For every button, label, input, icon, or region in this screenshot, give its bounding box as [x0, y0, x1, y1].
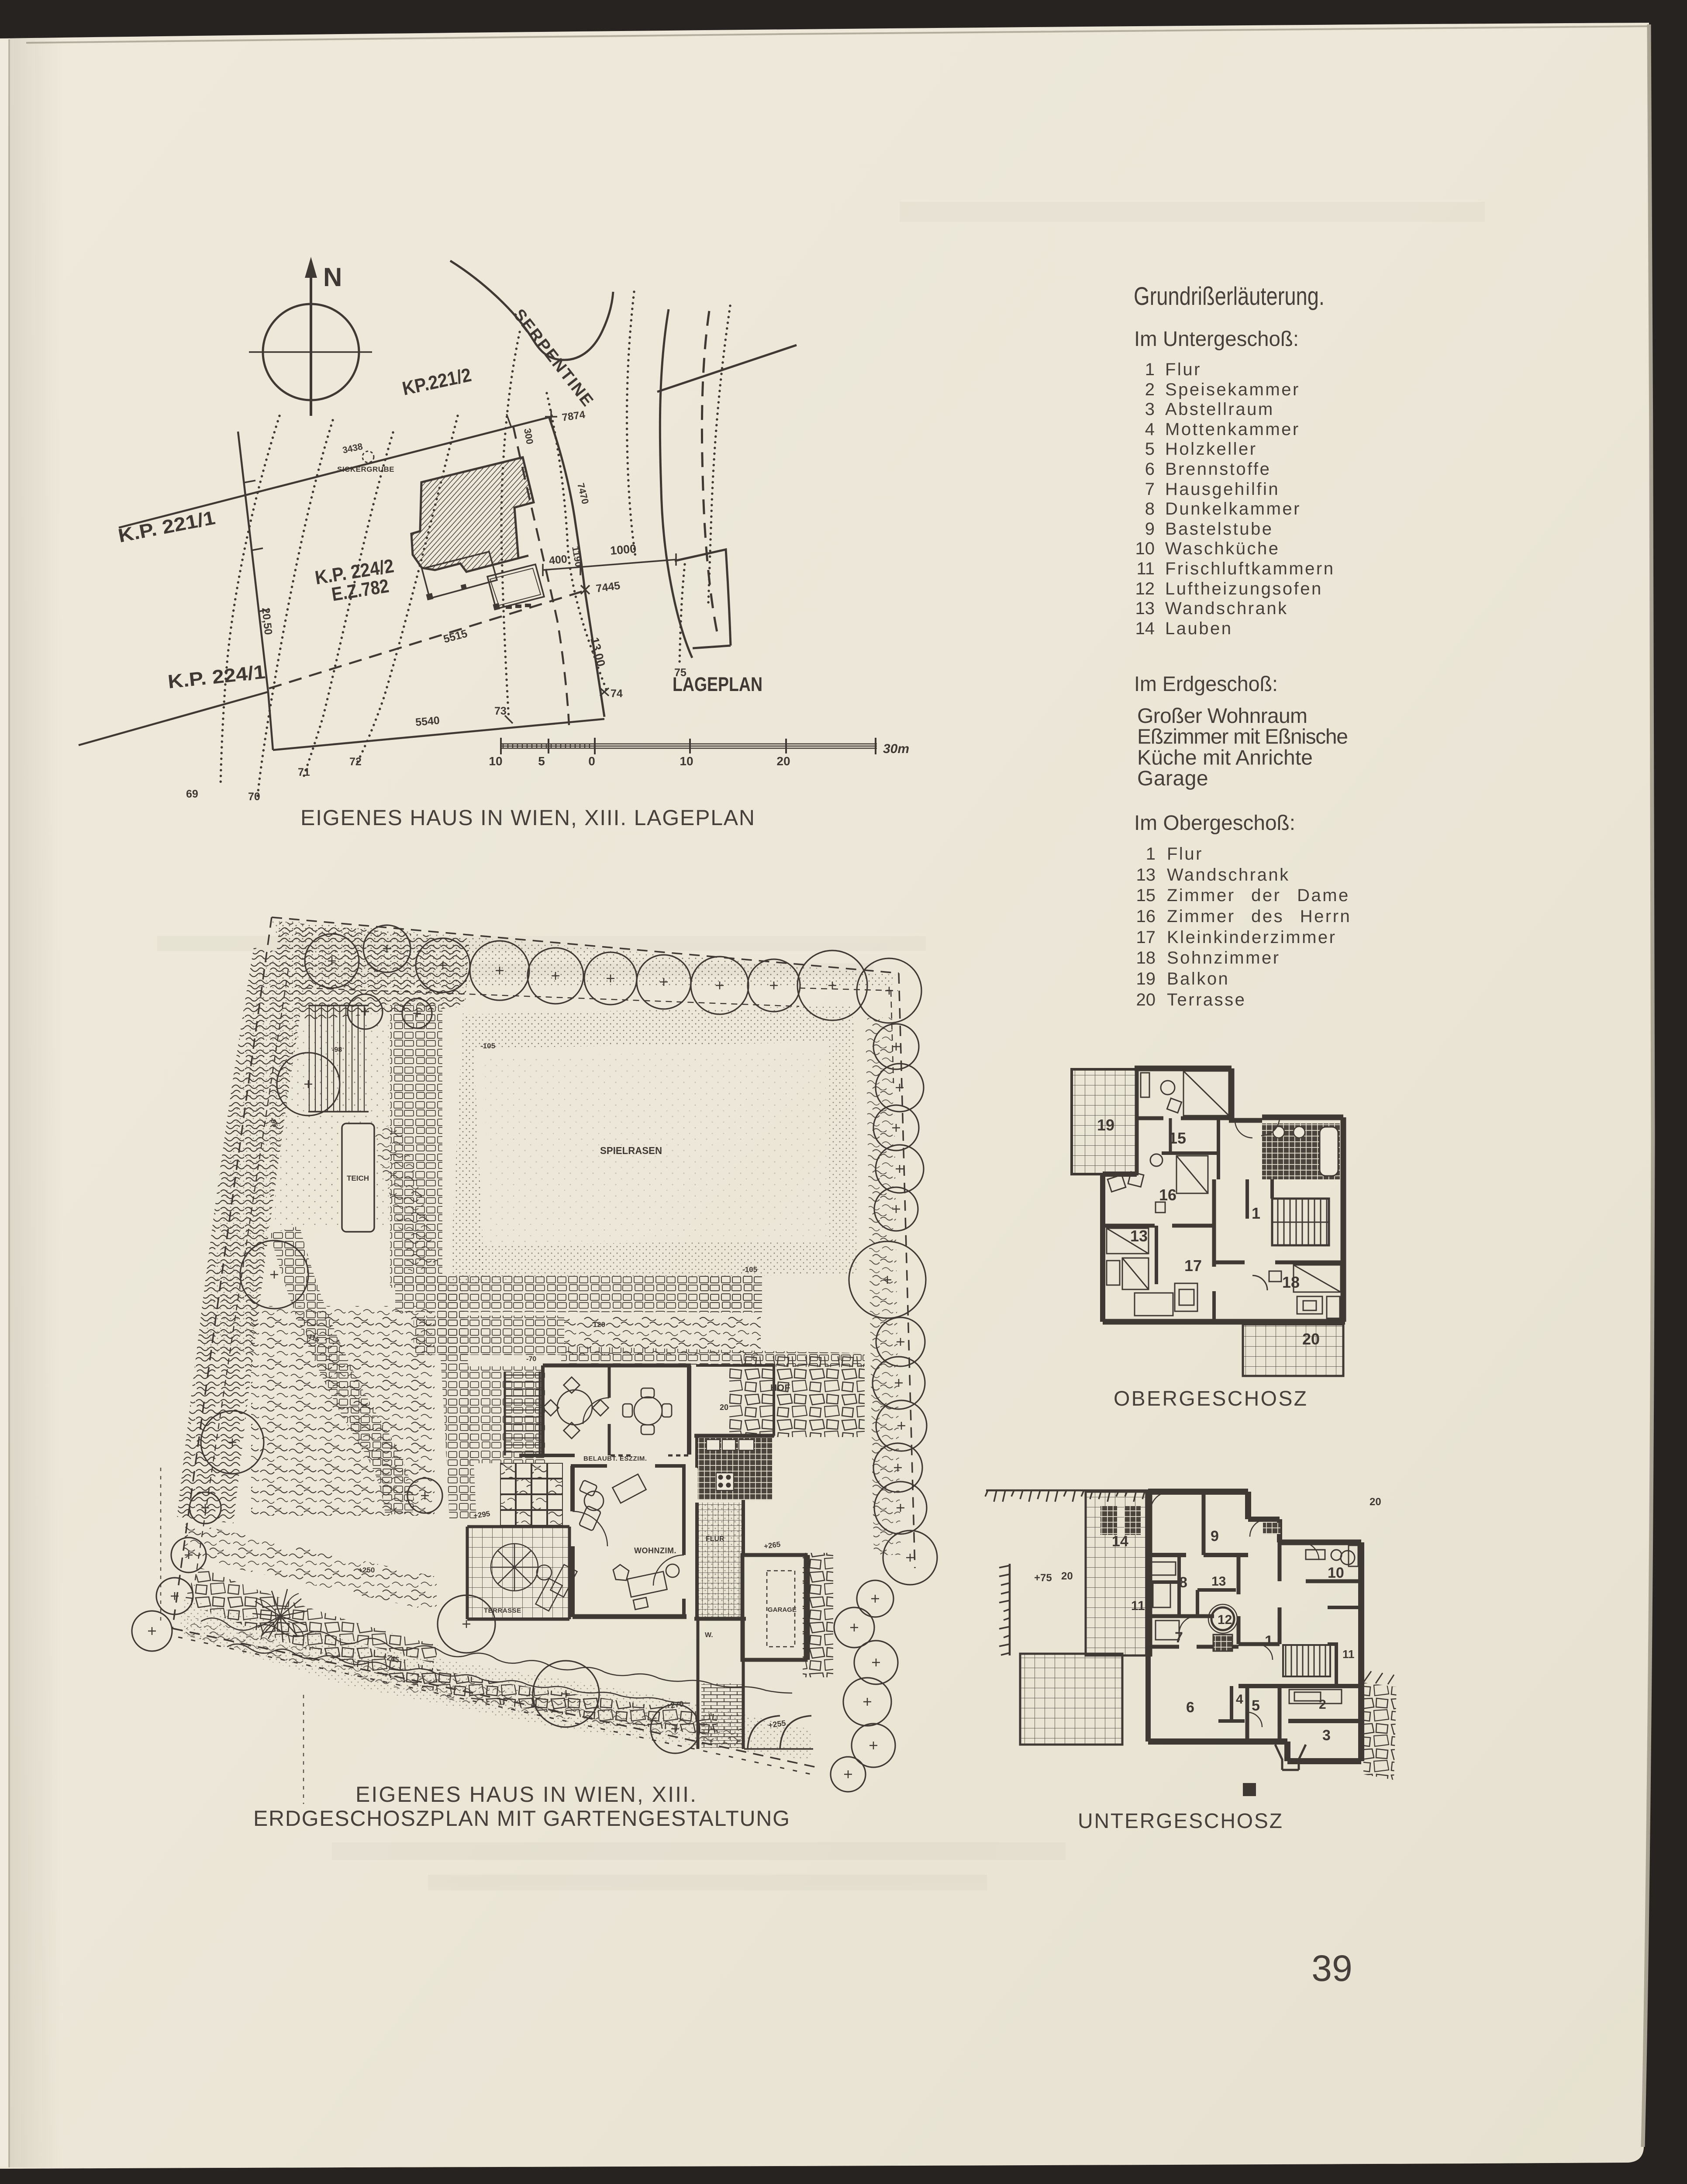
- svg-text:Abstellraum: Abstellraum: [1165, 400, 1274, 419]
- svg-text:EIGENES HAUS IN WIEN, XIII. LA: EIGENES HAUS IN WIEN, XIII. LAGEPLAN: [300, 805, 755, 830]
- svg-text:20: 20: [720, 1403, 728, 1412]
- svg-text:11: 11: [1131, 1599, 1145, 1613]
- svg-text:11: 11: [1136, 559, 1155, 578]
- svg-text:BELAUBT. ESZZIM.: BELAUBT. ESZZIM.: [583, 1455, 647, 1462]
- svg-text:13: 13: [1211, 1574, 1226, 1589]
- svg-text:Grundrißerläuterung.: Grundrißerläuterung.: [1134, 282, 1325, 311]
- svg-text:12: 12: [1218, 1613, 1232, 1627]
- svg-text:Waschküche: Waschküche: [1165, 539, 1280, 558]
- svg-text:18: 18: [1136, 948, 1156, 968]
- svg-text:6: 6: [1186, 1699, 1194, 1716]
- svg-text:Balkon: Balkon: [1167, 969, 1229, 988]
- svg-text:Flur: Flur: [1167, 844, 1203, 864]
- svg-text:SPIELRASEN: SPIELRASEN: [600, 1145, 662, 1156]
- svg-text:5540: 5540: [415, 714, 440, 729]
- svg-text:69: 69: [186, 788, 198, 800]
- svg-text:Zimmer des Herrn: Zimmer des Herrn: [1167, 907, 1351, 926]
- svg-text:Sohnzimmer: Sohnzimmer: [1167, 948, 1280, 968]
- svg-text:FLUR: FLUR: [706, 1535, 724, 1543]
- svg-text:7: 7: [1175, 1629, 1183, 1646]
- svg-text:20: 20: [776, 754, 790, 768]
- svg-text:3: 3: [1145, 400, 1155, 419]
- svg-text:14: 14: [1135, 619, 1155, 638]
- svg-text:9: 9: [1145, 519, 1155, 539]
- svg-text:Im Erdgeschoß:: Im Erdgeschoß:: [1134, 673, 1278, 696]
- svg-text:9: 9: [1211, 1528, 1219, 1545]
- svg-text:-70: -70: [526, 1355, 536, 1363]
- svg-text:18: 18: [1282, 1273, 1300, 1291]
- svg-text:Kleinkinderzimmer: Kleinkinderzimmer: [1167, 928, 1336, 947]
- svg-text:11: 11: [1342, 1648, 1355, 1661]
- svg-text:1000: 1000: [610, 542, 637, 557]
- svg-text:400: 400: [549, 553, 568, 567]
- svg-text:Dunkelkammer: Dunkelkammer: [1165, 499, 1301, 518]
- svg-text:Bastelstube: Bastelstube: [1165, 519, 1273, 539]
- svg-text:39: 39: [1311, 1948, 1352, 1989]
- svg-text:-105: -105: [742, 1265, 757, 1274]
- svg-text:UNTERGESCHOSZ: UNTERGESCHOSZ: [1078, 1810, 1282, 1833]
- svg-text:-98: -98: [332, 1046, 342, 1054]
- svg-text:W.: W.: [705, 1631, 713, 1639]
- svg-text:10: 10: [1328, 1565, 1344, 1581]
- svg-text:17: 17: [1136, 928, 1156, 947]
- svg-text:0: 0: [588, 754, 595, 768]
- svg-text:20: 20: [1136, 990, 1156, 1009]
- svg-text:1: 1: [1265, 1633, 1273, 1649]
- svg-text:8: 8: [1179, 1574, 1187, 1591]
- svg-text:13: 13: [1130, 1227, 1148, 1245]
- svg-text:19: 19: [1097, 1116, 1114, 1134]
- svg-text:Küche mit Anrichte: Küche mit Anrichte: [1137, 746, 1313, 769]
- svg-text:Frischluftkammern: Frischluftkammern: [1165, 559, 1335, 578]
- svg-text:2: 2: [1319, 1697, 1326, 1712]
- svg-text:72: 72: [349, 756, 362, 768]
- svg-text:73: 73: [494, 705, 507, 717]
- svg-text:13: 13: [1136, 865, 1156, 885]
- svg-text:5: 5: [538, 754, 545, 768]
- svg-text:5: 5: [1145, 439, 1155, 459]
- svg-text:16: 16: [1159, 1186, 1176, 1204]
- svg-text:8: 8: [1145, 499, 1155, 518]
- svg-text:3: 3: [1322, 1727, 1331, 1744]
- svg-text:Lauben: Lauben: [1165, 619, 1232, 638]
- svg-text:4: 4: [1236, 1692, 1243, 1707]
- svg-text:2: 2: [1145, 380, 1155, 399]
- svg-text:GARAGE: GARAGE: [768, 1606, 797, 1614]
- svg-text:75: 75: [674, 667, 687, 679]
- svg-text:17: 17: [1184, 1257, 1202, 1275]
- svg-text:-105: -105: [480, 1042, 495, 1050]
- svg-text:Terrasse: Terrasse: [1167, 990, 1246, 1009]
- svg-text:15: 15: [1136, 886, 1156, 905]
- svg-text:SICKERGRUBE: SICKERGRUBE: [337, 465, 394, 473]
- svg-text:Im Obergeschoß:: Im Obergeschoß:: [1134, 812, 1295, 835]
- svg-text:16: 16: [1136, 907, 1156, 926]
- svg-text:Brennstoffe: Brennstoffe: [1165, 460, 1271, 479]
- svg-text:4: 4: [1145, 420, 1155, 439]
- svg-text:Hausgehilfin: Hausgehilfin: [1165, 480, 1280, 499]
- svg-text:15: 15: [1169, 1129, 1186, 1147]
- svg-text:10: 10: [680, 754, 693, 768]
- svg-text:1: 1: [1252, 1204, 1260, 1222]
- svg-text:71: 71: [298, 766, 310, 778]
- svg-text:Mottenkammer: Mottenkammer: [1165, 420, 1300, 439]
- svg-text:Im Untergeschoß:: Im Untergeschoß:: [1134, 328, 1299, 351]
- svg-text:13: 13: [1135, 599, 1155, 618]
- svg-text:N: N: [323, 263, 342, 292]
- svg-text:1: 1: [1146, 844, 1156, 864]
- svg-text:70: 70: [248, 791, 260, 803]
- svg-text:Flur: Flur: [1165, 360, 1201, 379]
- svg-text:Garage: Garage: [1137, 767, 1208, 790]
- svg-text:7: 7: [1145, 480, 1155, 499]
- svg-text:20: 20: [1302, 1330, 1320, 1348]
- svg-text:30m: 30m: [883, 742, 909, 756]
- svg-text:20: 20: [1061, 1570, 1073, 1582]
- svg-text:20: 20: [1370, 1496, 1381, 1508]
- svg-text:Eßzimmer mit Eßnische: Eßzimmer mit Eßnische: [1137, 726, 1348, 749]
- svg-text:5: 5: [1252, 1697, 1260, 1714]
- svg-text:Großer Wohnraum: Großer Wohnraum: [1137, 705, 1308, 728]
- svg-text:Zimmer der Dame: Zimmer der Dame: [1167, 886, 1350, 905]
- svg-text:10: 10: [489, 754, 502, 768]
- svg-text:74: 74: [611, 688, 623, 700]
- svg-text:Luftheizungsofen: Luftheizungsofen: [1165, 579, 1323, 598]
- svg-text:-120: -120: [590, 1320, 605, 1329]
- svg-text:Wandschrank: Wandschrank: [1165, 599, 1288, 618]
- svg-text:12: 12: [1135, 579, 1155, 598]
- svg-text:TEICH: TEICH: [347, 1174, 369, 1182]
- svg-text:WOHNZIM.: WOHNZIM.: [634, 1546, 676, 1555]
- svg-text:HOF: HOF: [770, 1383, 790, 1393]
- svg-text:TERRASSE: TERRASSE: [484, 1607, 521, 1614]
- svg-text:Holzkeller: Holzkeller: [1165, 439, 1257, 459]
- svg-text:Speisekammer: Speisekammer: [1165, 380, 1300, 399]
- svg-text:ERDGESCHOSZPLAN MIT GARTENGEST: ERDGESCHOSZPLAN MIT GARTENGESTALTUNG: [253, 1806, 790, 1831]
- svg-text:19: 19: [1136, 969, 1156, 988]
- svg-text:14: 14: [1112, 1533, 1128, 1550]
- svg-text:Wandschrank: Wandschrank: [1167, 865, 1290, 885]
- svg-text:6: 6: [1145, 460, 1155, 479]
- svg-text:+75: +75: [1034, 1572, 1052, 1584]
- svg-text:1: 1: [1145, 360, 1155, 379]
- svg-text:10: 10: [1135, 539, 1155, 558]
- svg-text:EIGENES HAUS IN WIEN, XIII.: EIGENES HAUS IN WIEN, XIII.: [355, 1782, 696, 1807]
